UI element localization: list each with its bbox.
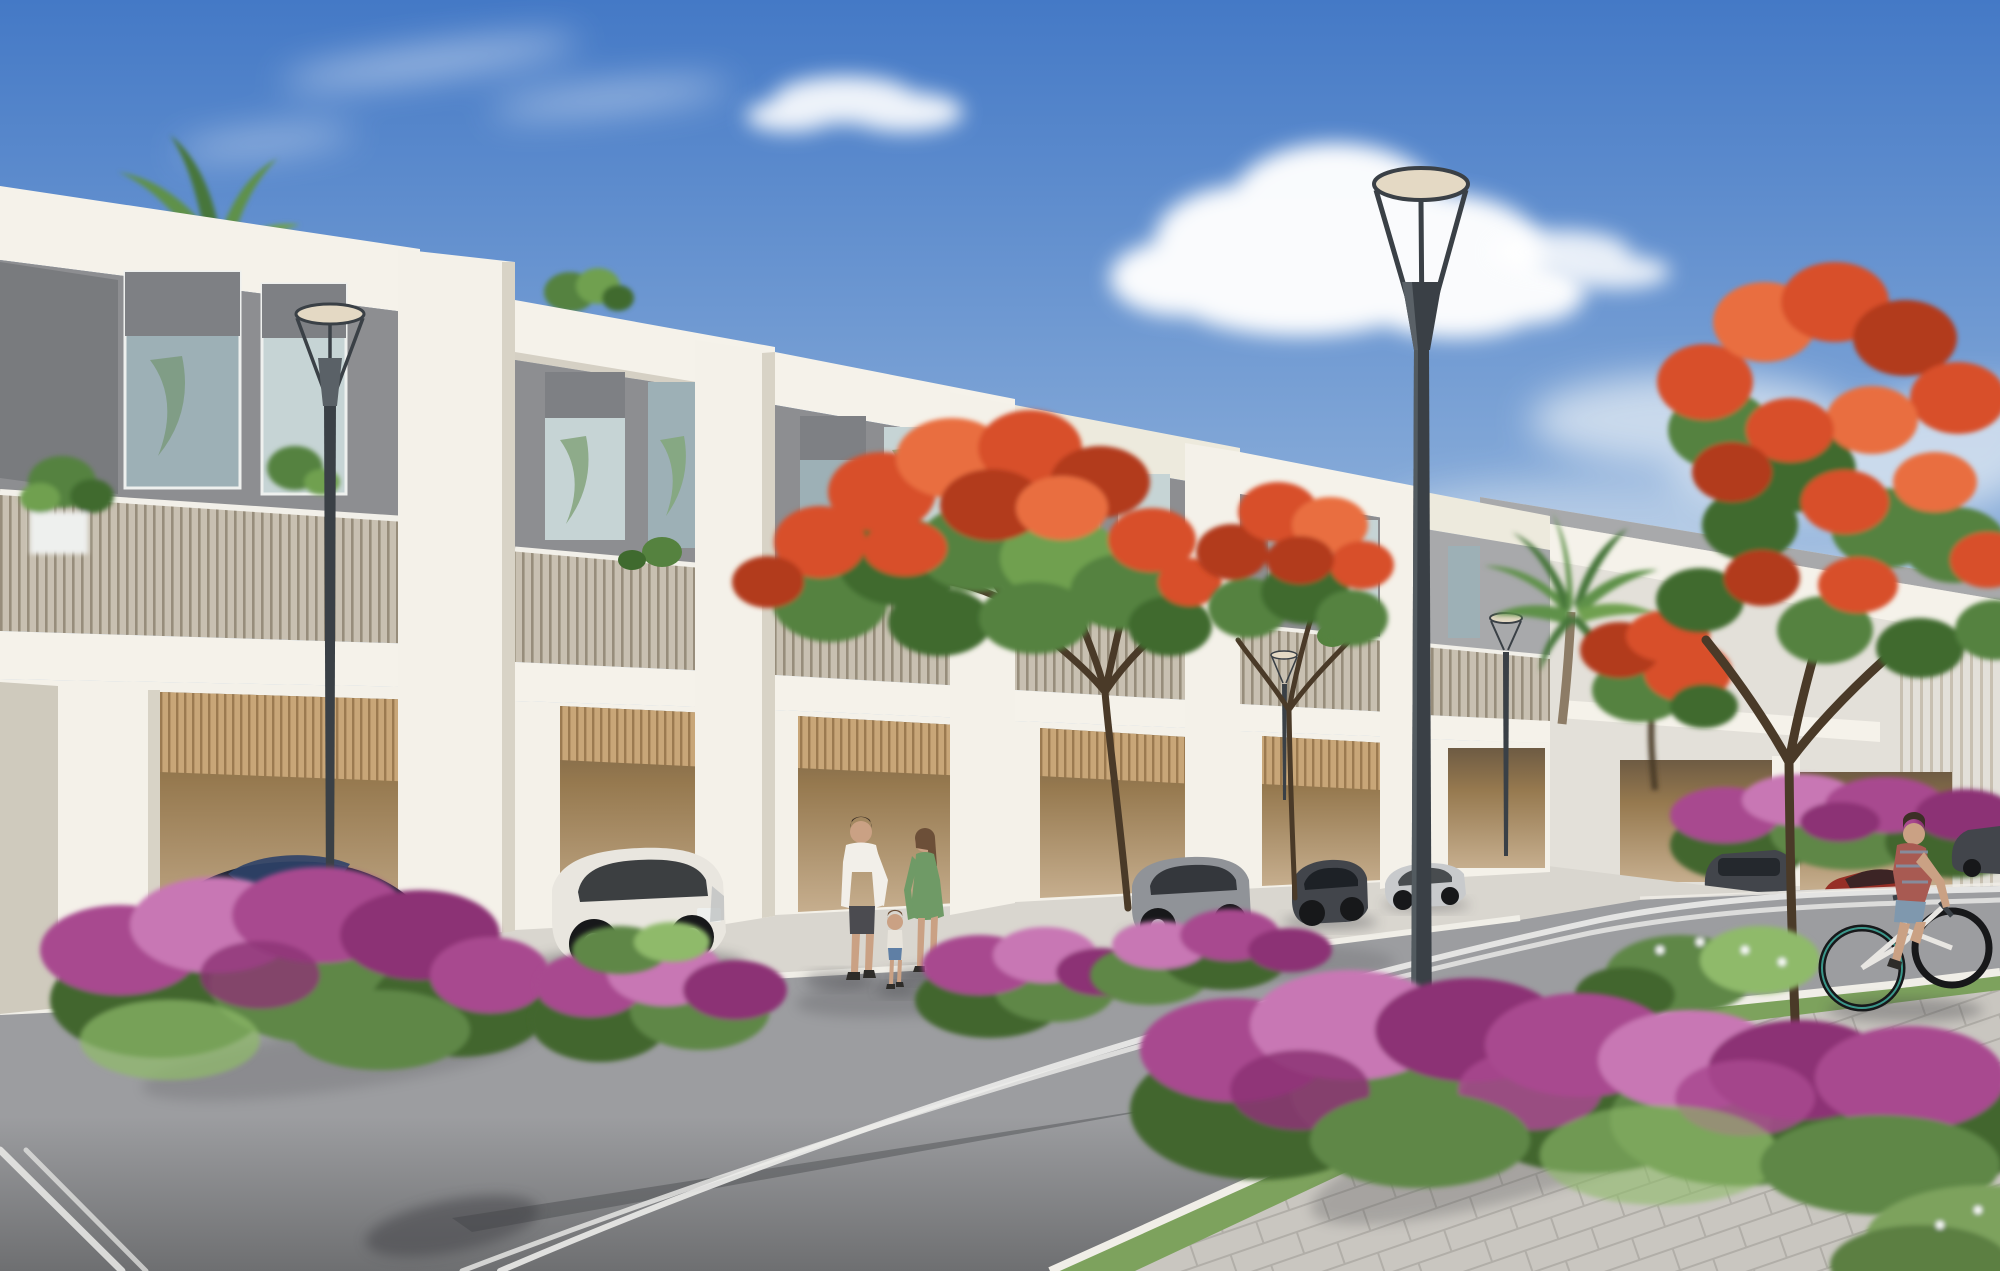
pier-edge-shade bbox=[502, 262, 515, 933]
balcony-plant bbox=[618, 550, 646, 570]
balcony-plant bbox=[642, 537, 682, 567]
scene-svg bbox=[0, 0, 2000, 1271]
separator-pier-4 bbox=[1185, 443, 1240, 902]
window bbox=[1448, 546, 1480, 638]
planter-box bbox=[30, 512, 88, 554]
street-scene-rendering bbox=[0, 0, 2000, 1271]
lamp-disc bbox=[1374, 168, 1468, 200]
pier-edge-shade bbox=[762, 352, 775, 918]
separator-pier-1 bbox=[398, 249, 515, 940]
